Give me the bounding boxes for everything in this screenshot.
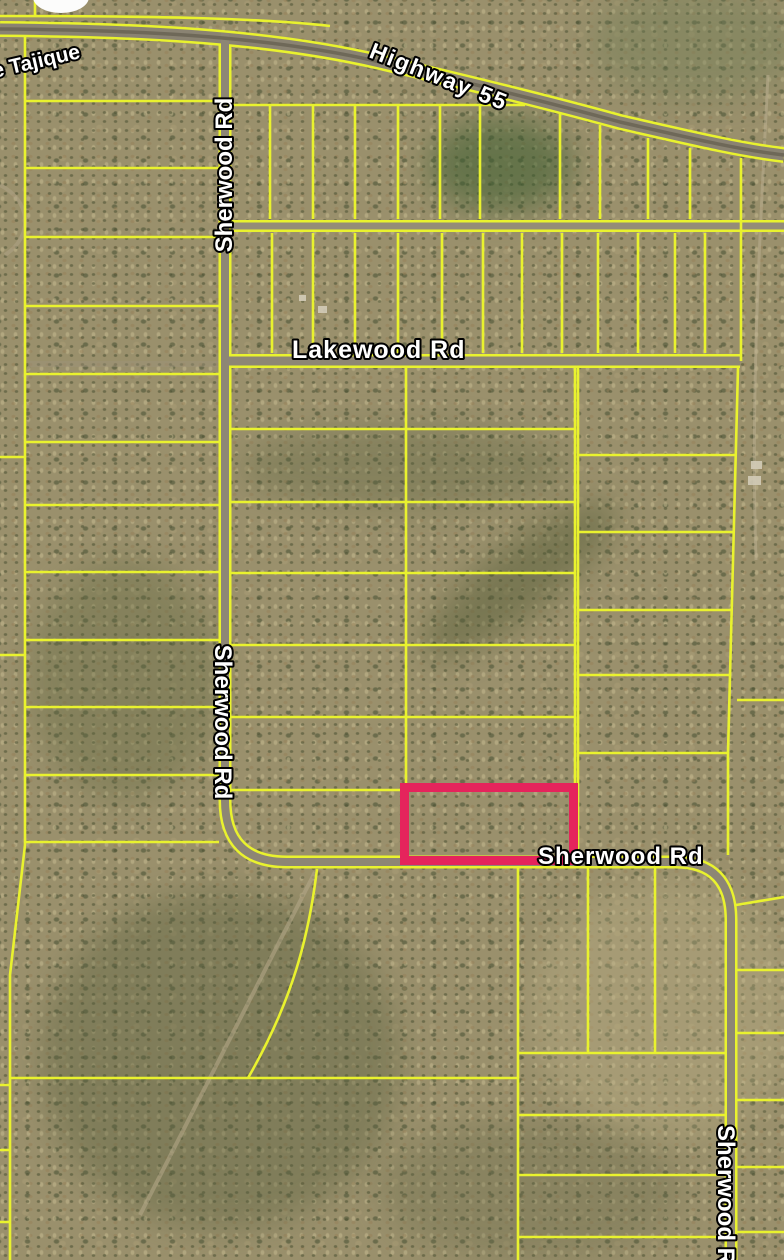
road-sherwood-edge [225, 33, 731, 1260]
satellite-map-view[interactable]: e Tajique Highway 55 Sherwood Rd Lakewoo… [0, 0, 784, 1260]
map-overlay: e Tajique Highway 55 Sherwood Rd Lakewoo… [0, 0, 784, 1260]
label-sherwood-rd-top: Sherwood Rd [211, 98, 238, 253]
white-marker [33, 0, 89, 13]
label-highway-55: Highway 55 [366, 37, 512, 115]
buildings [299, 295, 762, 485]
label-sherwood-rd-bottom: Sherwood Rd [538, 843, 704, 870]
road-sherwood-surface [225, 33, 731, 1260]
label-sherwood-rd-mid: Sherwood Rd [209, 645, 236, 800]
label-lakewood-rd: Lakewood Rd [292, 336, 466, 364]
parcel-boundary-lines [0, 0, 784, 1260]
label-tajique: e Tajique [0, 40, 82, 83]
label-sherwood-rd-right: Sherwood Rd [712, 1125, 739, 1260]
